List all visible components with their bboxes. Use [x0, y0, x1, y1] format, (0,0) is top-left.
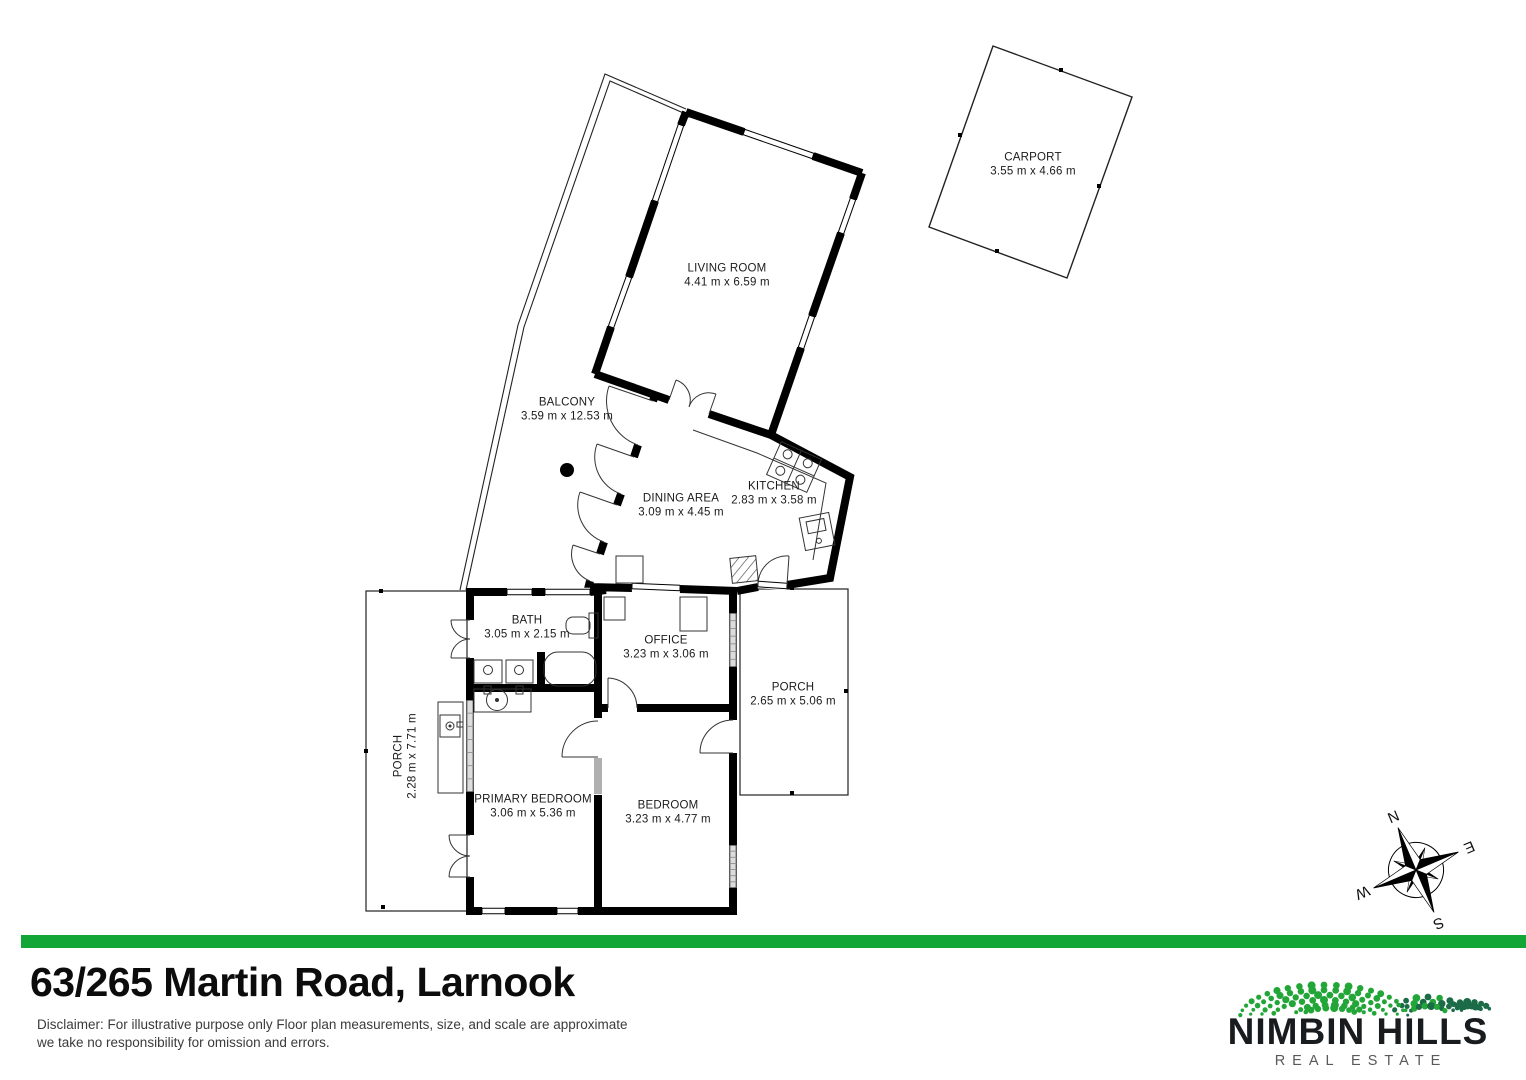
room-label-dining-area: DINING AREA 3.09 m x 4.45 m [638, 493, 723, 520]
brand-tagline: REAL ESTATE [1275, 1053, 1448, 1069]
compass-west-label: W [1352, 882, 1372, 904]
compass-east-label: E [1461, 837, 1477, 857]
compass-south-label: S [1431, 913, 1447, 933]
compass-rose: N E S W [1329, 784, 1500, 957]
disclaimer-line-1: Disclaimer: For illustrative purpose onl… [37, 1016, 628, 1034]
laundry-tub-icon [474, 689, 531, 712]
floorplan-svg: N E S W [0, 0, 1526, 1080]
bathtub-icon [544, 652, 596, 686]
room-label-carport: CARPORT 3.55 m x 4.66 m [990, 152, 1075, 179]
floorplan-page: N E S W CARPORT 3.55 m x 4.66 m LIVING R… [0, 0, 1526, 1080]
oven-icon [799, 512, 835, 550]
room-label-porch-right: PORCH 2.65 m x 5.06 m [750, 682, 835, 709]
dining-cabinet [616, 556, 643, 583]
compass-north-label: N [1385, 806, 1402, 826]
green-divider [21, 935, 1526, 948]
brand-name: NIMBIN HILLS [1228, 1011, 1489, 1053]
office-cupboard-2 [680, 597, 707, 631]
page-title: 63/265 Martin Road, Larnook [30, 959, 575, 1006]
room-label-living-room: LIVING ROOM 4.41 m x 6.59 m [684, 263, 769, 290]
room-label-primary-bedroom: PRIMARY BEDROOM 3.06 m x 5.36 m [474, 794, 592, 821]
room-label-bedroom: BEDROOM 3.23 m x 4.77 m [625, 800, 710, 827]
balcony-column [560, 463, 574, 477]
room-label-balcony: BALCONY 3.59 m x 12.53 m [521, 397, 613, 424]
porch-sink-icon [438, 702, 463, 793]
disclaimer-text: Disclaimer: For illustrative purpose onl… [37, 1016, 628, 1052]
office-cupboard [604, 597, 625, 620]
room-label-bath: BATH 3.05 m x 2.15 m [484, 615, 569, 642]
pantry-hatch [730, 556, 758, 584]
toilet-icon [566, 613, 598, 638]
room-label-kitchen: KITCHEN 2.83 m x 3.58 m [731, 481, 816, 508]
room-label-porch-left: PORCH 2.28 m x 7.71 m [393, 713, 420, 798]
disclaimer-line-2: we take no responsibility for omission a… [37, 1034, 628, 1052]
room-label-office: OFFICE 3.23 m x 3.06 m [623, 635, 708, 662]
